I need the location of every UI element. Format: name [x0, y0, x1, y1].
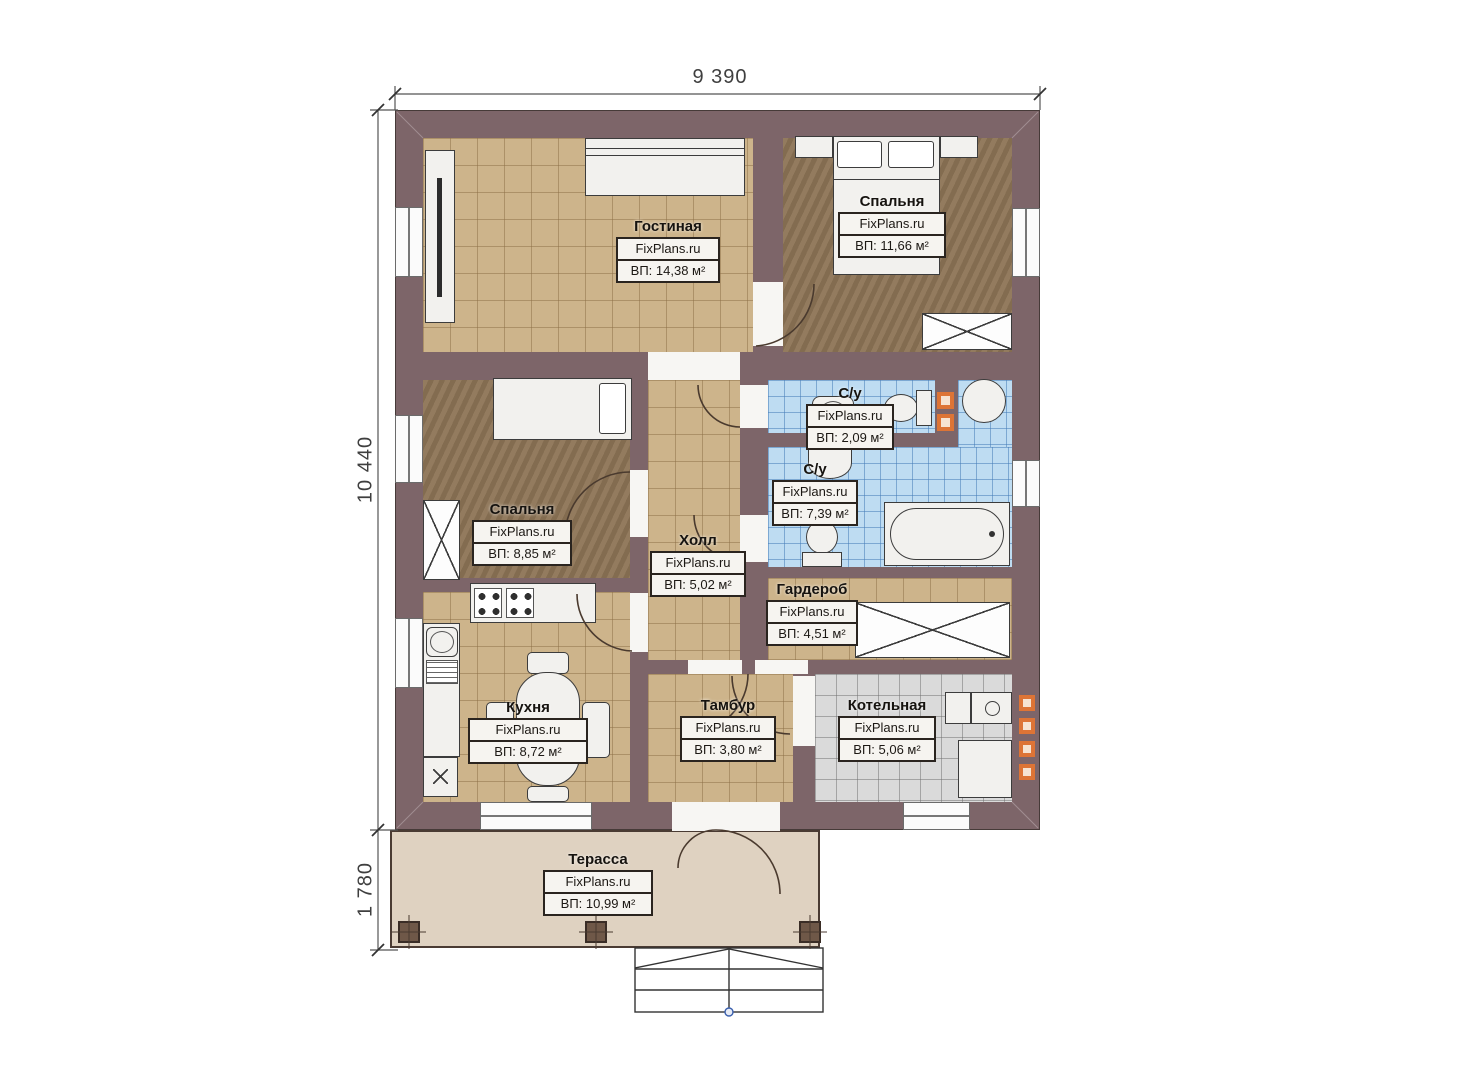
nightstand: [940, 136, 978, 158]
pillow: [837, 141, 882, 168]
room-title: Тамбур: [680, 698, 776, 714]
dim-tick: [389, 88, 401, 100]
window-bathroom: [1012, 460, 1040, 507]
room-hall-floor: [648, 380, 740, 660]
dim-label-left: 10 440: [355, 410, 378, 530]
steps-marker-dot: [725, 1008, 733, 1016]
room-label-living: Гостиная FixPlans.ru ВП: 14,38 м²: [616, 219, 720, 283]
area-row: ВП: 11,66 м²: [840, 236, 944, 256]
wardrobe-icon: [922, 313, 1012, 350]
dim-tick: [372, 944, 384, 956]
area-row: ВП: 14,38 м²: [618, 261, 718, 281]
brand-row: FixPlans.ru: [652, 553, 744, 575]
fridge-x-mark: [433, 769, 448, 784]
room-label-bedroom-right: Спальня FixPlans.ru ВП: 11,66 м²: [838, 194, 946, 258]
area-box: FixPlans.ru ВП: 5,06 м²: [838, 716, 936, 762]
area-box: FixPlans.ru ВП: 7,39 м²: [772, 480, 858, 526]
door-opening: [688, 660, 742, 674]
room-title: С/у: [772, 462, 858, 478]
toilet-tank: [916, 390, 932, 426]
door-opening: [630, 593, 648, 652]
chair: [527, 786, 569, 802]
room-label-wardrobe: Гардероб FixPlans.ru ВП: 4,51 м²: [766, 582, 858, 646]
pillow: [599, 383, 626, 434]
room-title: Холл: [650, 533, 746, 549]
sink-drainer: [426, 660, 458, 684]
brand-row: FixPlans.ru: [768, 602, 856, 624]
vent-shaft-icon: [937, 392, 954, 409]
area-box: FixPlans.ru ВП: 5,02 м²: [650, 551, 746, 597]
bathtub-drain: [989, 531, 995, 537]
area-row: ВП: 10,99 м²: [545, 894, 651, 914]
window-kitchen-bottom: [480, 802, 592, 830]
room-title: Спальня: [472, 502, 572, 518]
window-boiler: [903, 802, 970, 830]
blanket-line: [834, 179, 939, 180]
door-opening: [630, 470, 648, 537]
terrace-post: [799, 921, 821, 943]
kitchen-sink: [426, 627, 458, 657]
room-title: Терасса: [543, 852, 653, 868]
nightstand: [795, 136, 833, 158]
terrace-post: [585, 921, 607, 943]
brand-row: FixPlans.ru: [474, 522, 570, 544]
room-title: Гардероб: [766, 582, 858, 598]
entrance-opening: [672, 802, 780, 831]
room-label-wc-small: С/у FixPlans.ru ВП: 2,09 м²: [806, 386, 894, 450]
sofa: [585, 138, 745, 196]
dim-tick: [1034, 88, 1046, 100]
bathtub-basin: [890, 508, 1004, 560]
dim-tick: [372, 104, 384, 116]
room-label-bedroom-left: Спальня FixPlans.ru ВП: 8,85 м²: [472, 502, 572, 566]
window-kitchen-side: [395, 618, 423, 688]
room-title: Котельная: [838, 698, 936, 714]
room-label-wc-big: С/у FixPlans.ru ВП: 7,39 м²: [772, 462, 858, 526]
area-box: FixPlans.ru ВП: 8,85 м²: [472, 520, 572, 566]
steps-slope-lines: [635, 949, 823, 968]
dim-label-terrace: 1 780: [355, 840, 378, 940]
boiler-unit: [971, 692, 1012, 724]
door-opening: [755, 660, 808, 674]
brand-row: FixPlans.ru: [682, 718, 774, 740]
area-row: ВП: 4,51 м²: [768, 624, 856, 644]
boiler-unit: [945, 692, 971, 724]
room-title: Спальня: [838, 194, 946, 210]
area-box: FixPlans.ru ВП: 8,72 м²: [468, 718, 588, 764]
door-opening: [793, 676, 815, 746]
stove-burners-icon: [506, 588, 534, 618]
room-label-boiler: Котельная FixPlans.ru ВП: 5,06 м²: [838, 698, 936, 762]
brand-row: FixPlans.ru: [470, 720, 586, 742]
closet-icon: [423, 500, 460, 580]
area-box: FixPlans.ru ВП: 4,51 м²: [766, 600, 858, 646]
chair: [527, 652, 569, 674]
brand-row: FixPlans.ru: [840, 214, 944, 236]
area-row: ВП: 5,02 м²: [652, 575, 744, 595]
radiator-icon: [1019, 695, 1035, 711]
radiator-icon: [1019, 741, 1035, 757]
tv-icon: [437, 178, 442, 297]
terrace-post: [398, 921, 420, 943]
stove-burners-icon: [474, 588, 502, 618]
area-row: ВП: 5,06 м²: [840, 740, 934, 760]
area-row: ВП: 3,80 м²: [682, 740, 774, 760]
room-title: С/у: [806, 386, 894, 402]
sink-basin: [430, 631, 454, 653]
area-row: ВП: 8,72 м²: [470, 742, 586, 762]
bathtub: [884, 502, 1010, 566]
room-label-kitchen: Кухня FixPlans.ru ВП: 8,72 м²: [468, 700, 588, 764]
area-box: FixPlans.ru ВП: 2,09 м²: [806, 404, 894, 450]
vent-shaft-icon: [937, 414, 954, 431]
window-bedroom-left: [395, 415, 423, 483]
dim-tick: [372, 824, 384, 836]
area-box: FixPlans.ru ВП: 14,38 м²: [616, 237, 720, 283]
door-opening: [753, 282, 783, 346]
area-row: ВП: 7,39 м²: [774, 504, 856, 524]
brand-row: FixPlans.ru: [545, 872, 651, 894]
fridge-icon: [423, 757, 458, 797]
area-box: FixPlans.ru ВП: 3,80 м²: [680, 716, 776, 762]
brand-row: FixPlans.ru: [808, 406, 892, 428]
area-row: ВП: 8,85 м²: [474, 544, 570, 564]
steps-outline: [635, 948, 823, 1012]
hall-opening: [648, 352, 740, 380]
floor-plan-canvas: 9 390 10 440 1 780 Гостиная FixPlans.ru …: [0, 0, 1473, 1080]
window-bedroom-right: [1012, 208, 1040, 277]
boiler-equipment: [958, 740, 1012, 798]
washing-machine-icon: [962, 379, 1006, 423]
radiator-icon: [1019, 718, 1035, 734]
entry-steps: [635, 948, 823, 1016]
area-row: ВП: 2,09 м²: [808, 428, 892, 448]
toilet-tank: [802, 552, 842, 567]
room-label-tambour: Тамбур FixPlans.ru ВП: 3,80 м²: [680, 698, 776, 762]
tv-stand: [425, 150, 455, 323]
area-box: FixPlans.ru ВП: 10,99 м²: [543, 870, 653, 916]
pillow: [888, 141, 934, 168]
brand-row: FixPlans.ru: [618, 239, 718, 261]
room-label-hall: Холл FixPlans.ru ВП: 5,02 м²: [650, 533, 746, 597]
radiator-icon: [1019, 764, 1035, 780]
brand-row: FixPlans.ru: [840, 718, 934, 740]
dim-label-top: 9 390: [650, 66, 790, 89]
area-box: FixPlans.ru ВП: 11,66 м²: [838, 212, 946, 258]
window-living: [395, 207, 423, 277]
sofa-back-line: [586, 148, 744, 149]
wardrobe-unit-icon: [855, 602, 1010, 658]
sofa-seat-line: [586, 155, 744, 156]
room-title: Кухня: [468, 700, 588, 716]
room-label-terrace: Терасса FixPlans.ru ВП: 10,99 м²: [543, 852, 653, 916]
door-opening: [740, 385, 768, 428]
brand-row: FixPlans.ru: [774, 482, 856, 504]
room-title: Гостиная: [616, 219, 720, 235]
single-bed: [493, 378, 632, 440]
boiler-dial-icon: [985, 701, 1000, 716]
